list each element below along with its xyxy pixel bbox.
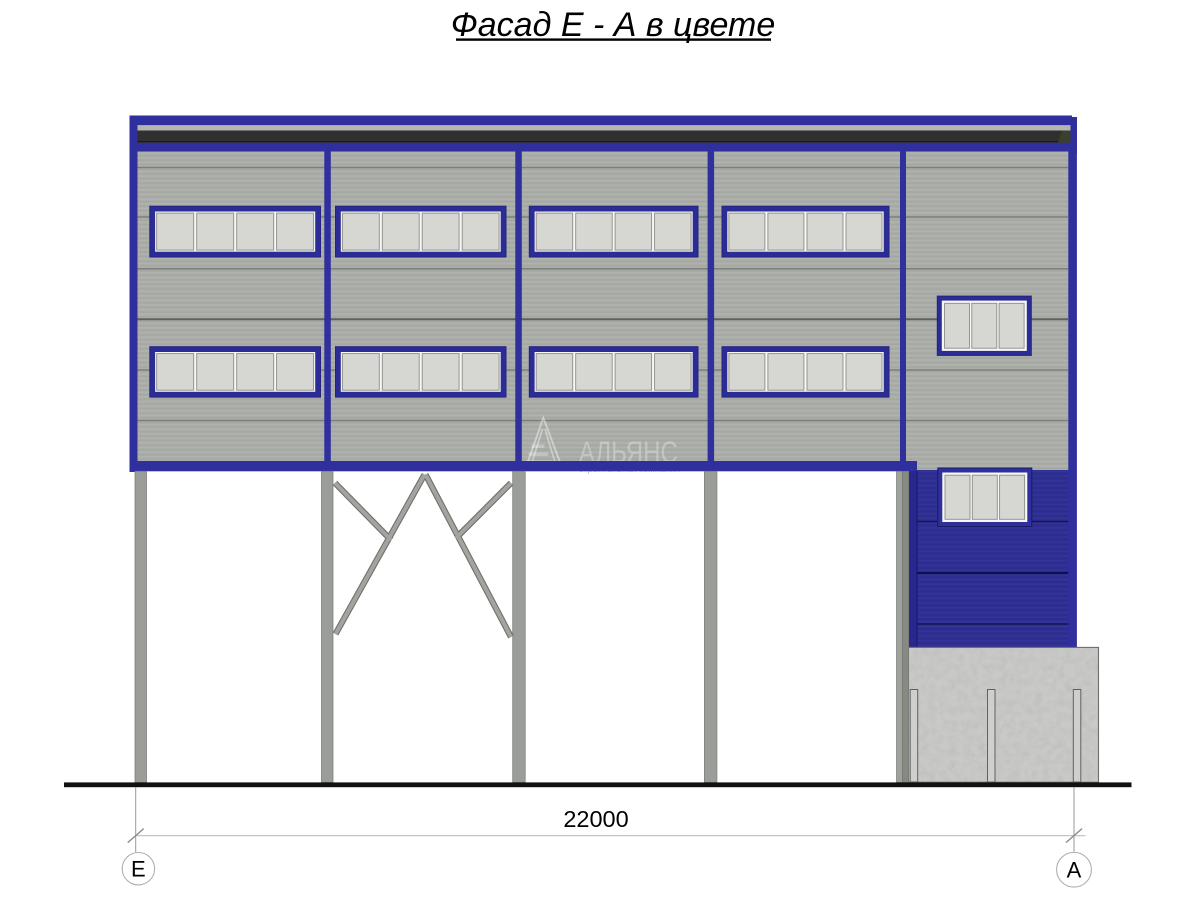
svg-text:А: А [1067, 858, 1082, 883]
svg-text:Фасад Е - А в цвете: Фасад Е - А в цвете [451, 6, 776, 44]
svg-text:Е: Е [131, 857, 146, 882]
svg-text:22000: 22000 [563, 806, 628, 832]
